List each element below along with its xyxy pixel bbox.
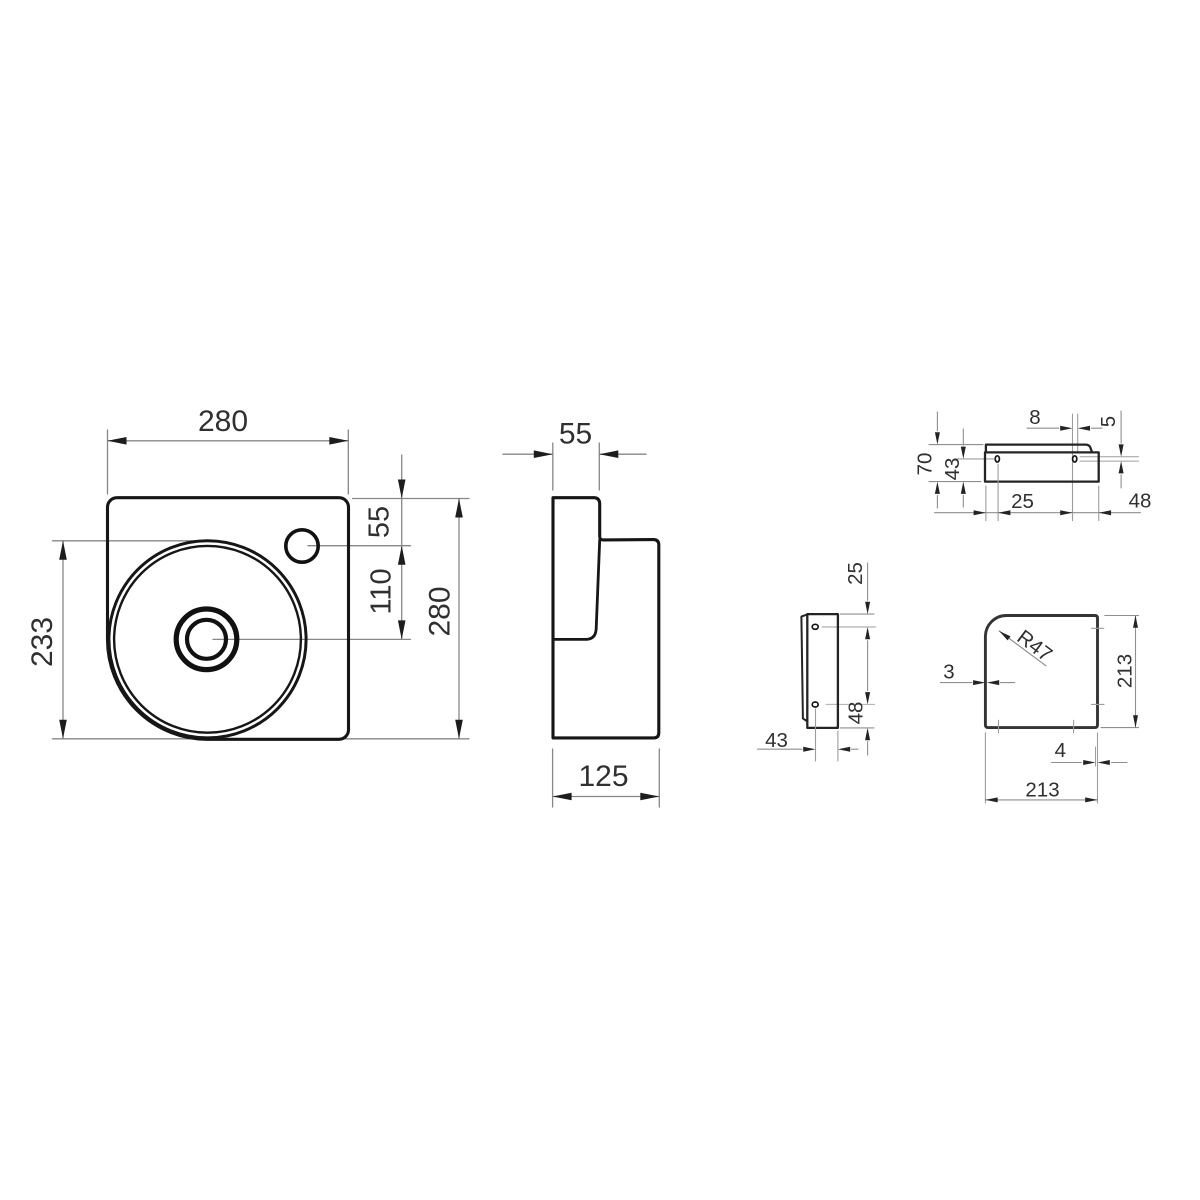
svg-text:125: 125: [578, 760, 628, 793]
svg-text:110: 110: [366, 568, 398, 614]
svg-text:48: 48: [845, 702, 868, 725]
svg-text:280: 280: [424, 586, 457, 636]
svg-text:48: 48: [1129, 490, 1152, 513]
svg-text:43: 43: [941, 458, 964, 481]
svg-text:213: 213: [1113, 654, 1136, 688]
svg-text:8: 8: [1029, 406, 1040, 429]
svg-text:213: 213: [1025, 779, 1059, 802]
svg-text:4: 4: [1055, 739, 1066, 762]
svg-text:55: 55: [559, 418, 592, 451]
svg-text:280: 280: [198, 405, 248, 438]
svg-text:25: 25: [1011, 490, 1034, 513]
svg-text:233: 233: [26, 617, 59, 667]
svg-text:43: 43: [765, 729, 788, 752]
svg-text:3: 3: [943, 660, 954, 683]
svg-text:5: 5: [1097, 416, 1120, 427]
svg-text:55: 55: [364, 506, 396, 538]
svg-text:70: 70: [913, 453, 936, 476]
svg-text:25: 25: [844, 562, 867, 585]
